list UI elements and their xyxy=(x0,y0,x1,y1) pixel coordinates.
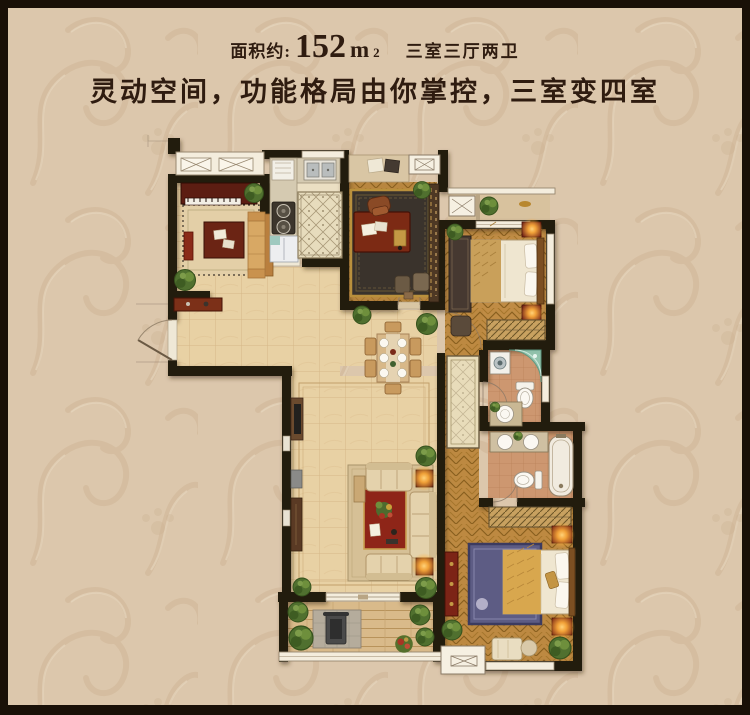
plant xyxy=(417,314,438,335)
area-unit: m xyxy=(350,37,369,63)
plate xyxy=(398,354,407,363)
wall xyxy=(282,376,291,598)
bench xyxy=(184,232,193,260)
desk xyxy=(354,212,410,252)
wardrobe xyxy=(487,320,545,340)
ac-platform-top xyxy=(409,155,440,174)
plant xyxy=(175,270,196,291)
wall xyxy=(340,301,398,310)
wall xyxy=(479,350,488,382)
lamp xyxy=(549,614,575,640)
treadmill xyxy=(323,612,349,644)
loveseat xyxy=(366,554,412,580)
armchair xyxy=(451,316,471,336)
cushion xyxy=(367,158,384,173)
wall xyxy=(479,498,493,507)
master-bedroom-window xyxy=(486,662,554,670)
coffee-table xyxy=(364,489,406,549)
plant xyxy=(414,182,431,199)
hallway xyxy=(447,356,479,448)
dining-chair xyxy=(410,360,421,377)
piano-room xyxy=(181,183,273,278)
sofa xyxy=(248,212,273,278)
lamp xyxy=(549,522,575,548)
dining-chair xyxy=(365,360,376,377)
living-balcony-sliding-door xyxy=(326,593,400,601)
loveseat xyxy=(366,463,412,491)
bed xyxy=(503,544,575,616)
plate xyxy=(398,339,407,348)
dish-rack xyxy=(272,160,294,180)
ac-platform-bottom xyxy=(441,646,485,674)
study-room xyxy=(351,182,439,303)
bathroom1-window xyxy=(542,376,549,402)
kitchen xyxy=(270,158,342,262)
dining-chair xyxy=(365,338,376,355)
area-label: 面积约: xyxy=(230,37,291,62)
wall xyxy=(573,422,582,670)
title-block: 面积约:152m2 三室三厅两卫 灵动空间，功能格局由你掌控，三室变四室 xyxy=(8,30,742,109)
flower-bush xyxy=(395,635,413,653)
tv-cabinet xyxy=(445,552,458,616)
plant xyxy=(447,224,463,240)
bookshelf xyxy=(429,184,439,302)
wall xyxy=(168,360,177,376)
plant xyxy=(480,197,498,215)
plant xyxy=(289,626,313,650)
plate xyxy=(398,369,407,378)
plant xyxy=(416,446,436,466)
faucet xyxy=(556,434,566,438)
chair xyxy=(413,273,429,291)
chair xyxy=(395,276,410,293)
toilet xyxy=(514,471,542,489)
area-unit-exponent: 2 xyxy=(373,45,380,61)
plant xyxy=(416,578,437,599)
dining-table xyxy=(377,334,409,382)
cushion xyxy=(384,159,399,173)
fridge xyxy=(270,236,298,262)
floor-lamp xyxy=(411,465,437,491)
plant xyxy=(442,620,462,640)
piano-room-bay-window xyxy=(176,152,264,175)
vanity-sink xyxy=(490,402,522,426)
plant xyxy=(549,637,571,659)
headboard xyxy=(537,238,544,304)
plant xyxy=(293,578,311,596)
plant xyxy=(288,602,308,622)
plate xyxy=(380,339,389,348)
foyer-floor xyxy=(260,267,340,376)
floor-lamp xyxy=(411,553,437,579)
living-west-window xyxy=(283,436,290,451)
dining-chair xyxy=(410,338,421,355)
wall xyxy=(168,366,292,376)
tv-cabinet xyxy=(291,398,303,551)
bathtub xyxy=(549,434,573,496)
centerpiece xyxy=(390,349,396,355)
plant xyxy=(416,628,434,646)
double-vanity xyxy=(490,432,548,453)
lamp xyxy=(521,218,543,240)
plant xyxy=(490,402,500,412)
balcony-decor xyxy=(519,201,531,207)
kitchen-mat xyxy=(298,192,342,258)
dining-chair xyxy=(385,384,401,394)
wall xyxy=(517,498,585,507)
side-table xyxy=(521,640,537,656)
bedroom2-window xyxy=(547,234,554,304)
pillow xyxy=(524,272,538,297)
study-bay-seat xyxy=(349,155,409,182)
living-west-window xyxy=(283,510,290,526)
area-value: 152 xyxy=(295,30,346,64)
coffee-table xyxy=(204,222,244,258)
plant xyxy=(514,432,523,441)
floorplan-page: 面积约:152m2 三室三厅两卫 灵动空间，功能格局由你掌控，三室变四室 xyxy=(0,0,750,715)
kitchen-sink xyxy=(304,160,336,180)
washing-machine xyxy=(490,352,510,374)
kitchen-window xyxy=(302,151,344,158)
plant xyxy=(353,306,371,324)
ac-platform-balcony xyxy=(449,196,475,216)
sofa-main xyxy=(410,492,436,558)
wall xyxy=(302,258,348,267)
headboard xyxy=(569,548,575,616)
room-count-text: 三室三厅两卫 xyxy=(406,37,520,62)
plate xyxy=(380,354,389,363)
slogan-text: 灵动空间，功能格局由你掌控，三室变四室 xyxy=(8,70,742,109)
wall xyxy=(483,340,555,350)
area-line: 面积约:152m2 三室三厅两卫 xyxy=(8,30,742,64)
dining-chair xyxy=(385,322,401,332)
plant xyxy=(410,605,430,625)
pillow xyxy=(555,552,570,579)
study-door-threshold xyxy=(398,302,420,309)
plant xyxy=(245,184,264,203)
dimension-tick xyxy=(148,135,168,147)
plate xyxy=(380,369,389,378)
balcony-rail xyxy=(279,652,441,661)
side-table xyxy=(404,292,413,299)
centerpiece xyxy=(390,361,396,367)
side-table xyxy=(354,476,365,502)
pillow xyxy=(524,244,538,269)
bench xyxy=(492,638,522,660)
console-table xyxy=(174,298,222,311)
stove xyxy=(272,202,295,234)
floorplan-drawing xyxy=(8,8,750,715)
